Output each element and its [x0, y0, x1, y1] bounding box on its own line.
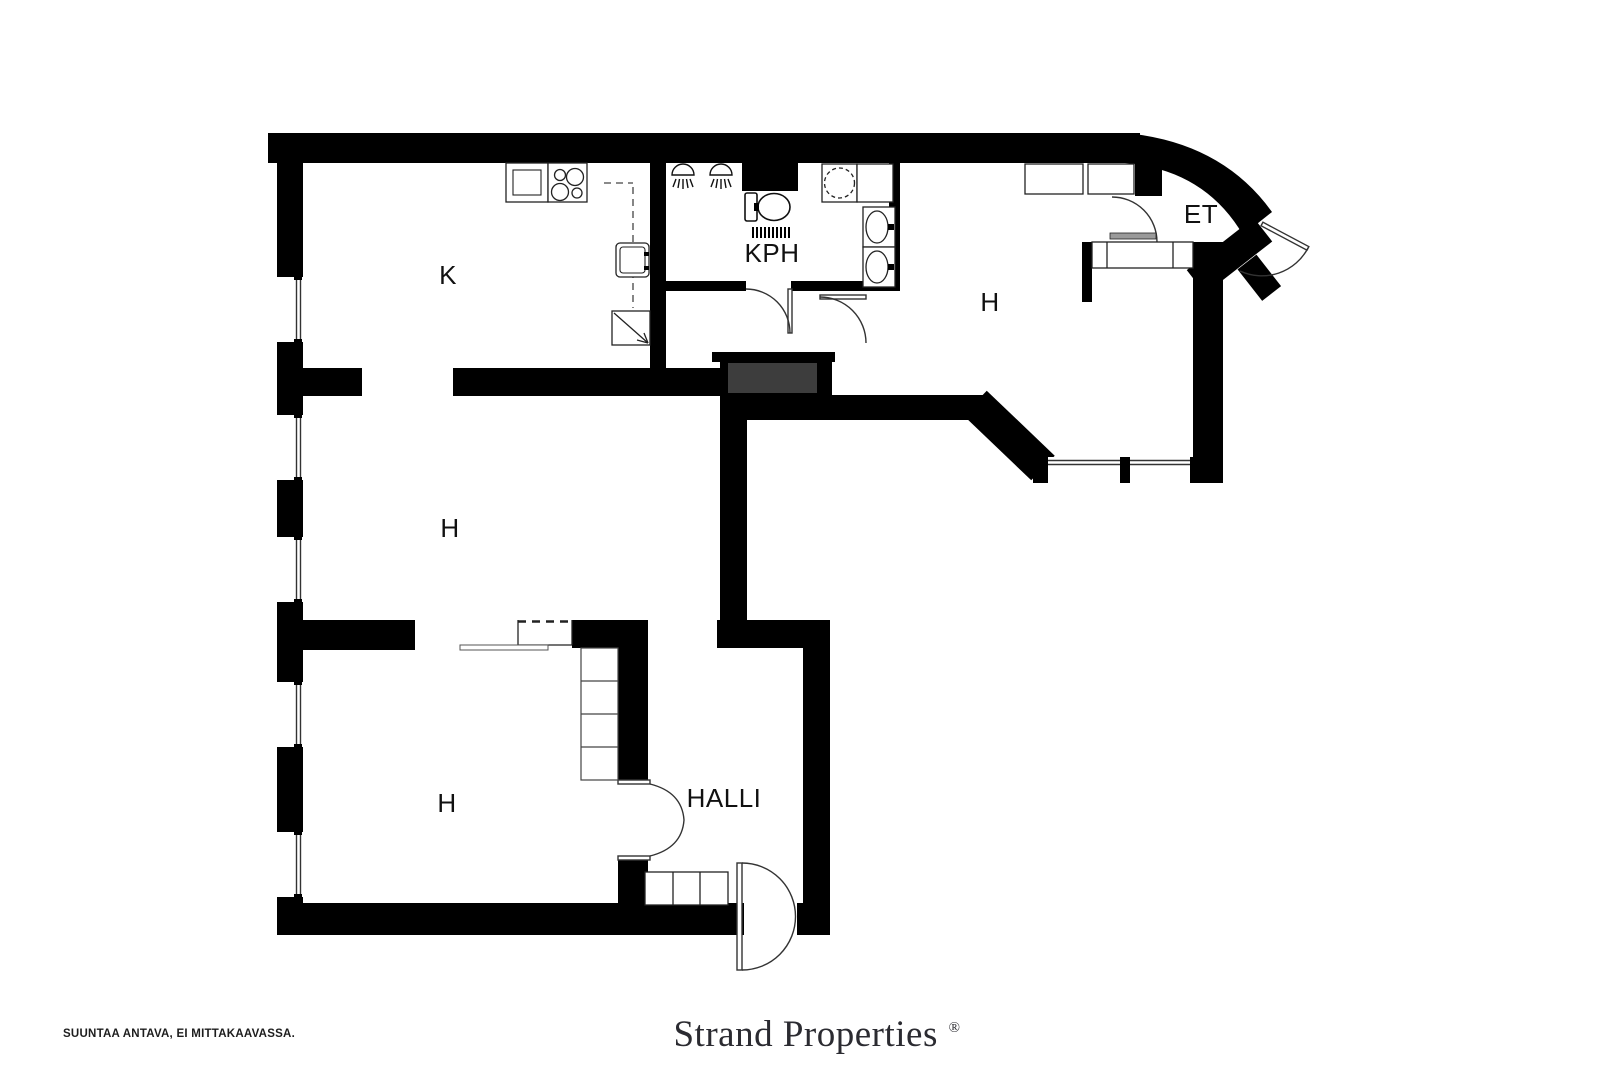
wall-mid-lower	[277, 620, 415, 650]
shower-icon	[710, 164, 732, 189]
label-entry: ET	[1184, 199, 1218, 229]
label-room-right: H	[980, 287, 999, 317]
kitchen-counter-icon	[506, 163, 548, 202]
door-bathroom	[746, 289, 792, 333]
closet-mid-dashed	[518, 620, 572, 645]
bathroom-counter	[857, 164, 893, 202]
label-room-lower: H	[437, 788, 456, 818]
wall-right-room-bottom	[747, 395, 990, 420]
kitchen-sink-icon	[616, 243, 649, 277]
wall-diagonal	[975, 403, 1043, 468]
door-double-hall	[618, 780, 684, 860]
sink-basin-icon	[863, 247, 895, 287]
closet-right-room-2	[1088, 164, 1134, 194]
floorplan-drawing: K KPH H ET H H HALLI SUUNTAA ANTAVA, EI …	[0, 0, 1600, 1067]
shaft	[727, 362, 818, 394]
wall-kitchen-bottom-stub	[277, 368, 362, 396]
wall-hall-left-lower	[618, 858, 648, 908]
toilet-icon	[745, 193, 790, 221]
window-right-room-1	[1048, 457, 1120, 483]
brand-logo: Strand Properties ®	[673, 1014, 960, 1055]
label-room-middle: H	[440, 513, 459, 543]
wall-shaft-right	[818, 362, 832, 395]
wall-hall-right	[803, 648, 830, 935]
wall-closet-right	[572, 620, 648, 648]
wall-kitchen-right	[650, 163, 666, 396]
brand-name: Strand Properties	[673, 1014, 937, 1055]
shower-icon	[672, 164, 694, 189]
window-right-room-2	[1130, 457, 1190, 483]
window-lower-2	[277, 832, 303, 897]
window-kitchen	[277, 277, 303, 342]
footer: SUUNTAA ANTAVA, EI MITTAKAAVASSA. Strand…	[63, 1014, 961, 1055]
wardrobe-lower	[581, 648, 618, 780]
window-middle-1	[277, 415, 303, 480]
registered-mark-icon: ®	[949, 1020, 961, 1036]
cabinet-hall	[645, 872, 728, 905]
opening-hall-entry	[744, 903, 797, 935]
disclaimer-text: SUUNTAA ANTAVA, EI MITTAKAAVASSA.	[63, 1028, 295, 1040]
wall-entry-closet-stub	[1082, 242, 1092, 302]
door-right-room	[820, 295, 866, 343]
sliding-door-entry	[1110, 233, 1156, 239]
sink-basin-icon	[863, 207, 895, 247]
wall-toilet-nook	[742, 163, 798, 191]
wall-hall-top	[717, 620, 830, 648]
wall-corridor	[720, 357, 747, 622]
label-kitchen: K	[439, 260, 457, 290]
wall-top	[268, 133, 1140, 163]
kitchen-fixtures	[506, 163, 650, 345]
label-hall: HALLI	[687, 783, 762, 813]
towel-rail	[750, 227, 791, 238]
label-bathroom: KPH	[745, 238, 800, 268]
floorplan-page: K KPH H ET H H HALLI SUUNTAA ANTAVA, EI …	[0, 0, 1600, 1067]
wall-kitchen-bottom	[453, 368, 747, 396]
sliding-door-mid	[460, 645, 548, 650]
closet-entry	[1092, 233, 1193, 268]
stove-icon	[548, 163, 587, 202]
closet-right-room-1	[1025, 164, 1083, 194]
window-middle-2	[277, 537, 303, 602]
wall-left	[277, 133, 303, 935]
washing-machine-icon	[822, 164, 857, 202]
fridge-icon	[612, 311, 650, 345]
window-lower-1	[277, 682, 303, 747]
